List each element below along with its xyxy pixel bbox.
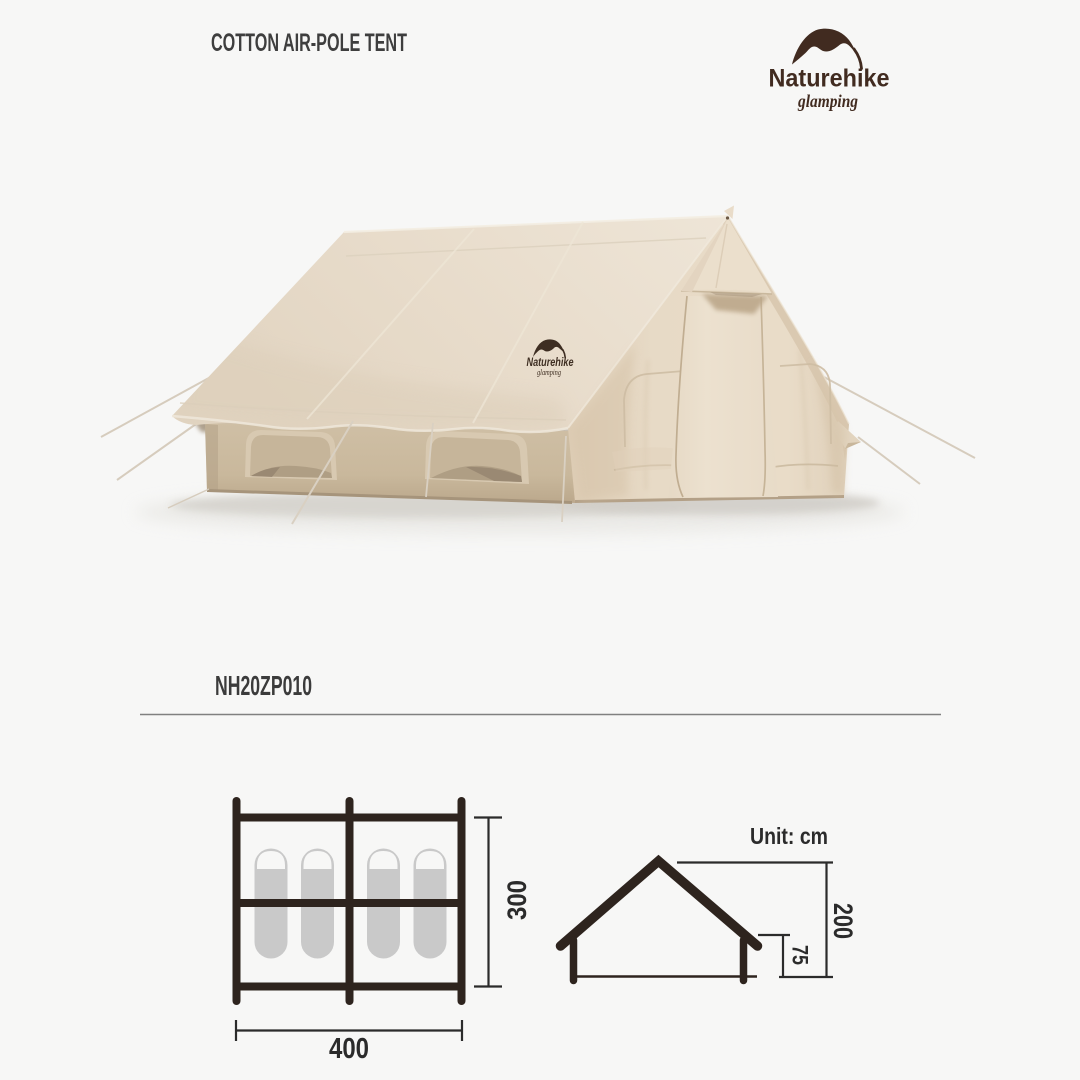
- svg-text:COTTON AIR-POLE TENT: COTTON AIR-POLE TENT: [211, 29, 407, 57]
- svg-text:glamping: glamping: [537, 368, 561, 377]
- svg-text:400: 400: [329, 1033, 369, 1065]
- svg-text:300: 300: [502, 880, 532, 920]
- svg-text:Unit: cm: Unit: cm: [750, 823, 828, 849]
- svg-text:NH20ZP010: NH20ZP010: [215, 670, 312, 701]
- svg-text:75: 75: [788, 945, 813, 965]
- svg-text:glamping: glamping: [797, 91, 858, 111]
- svg-text:200: 200: [828, 903, 858, 939]
- svg-text:Naturehike: Naturehike: [769, 65, 890, 93]
